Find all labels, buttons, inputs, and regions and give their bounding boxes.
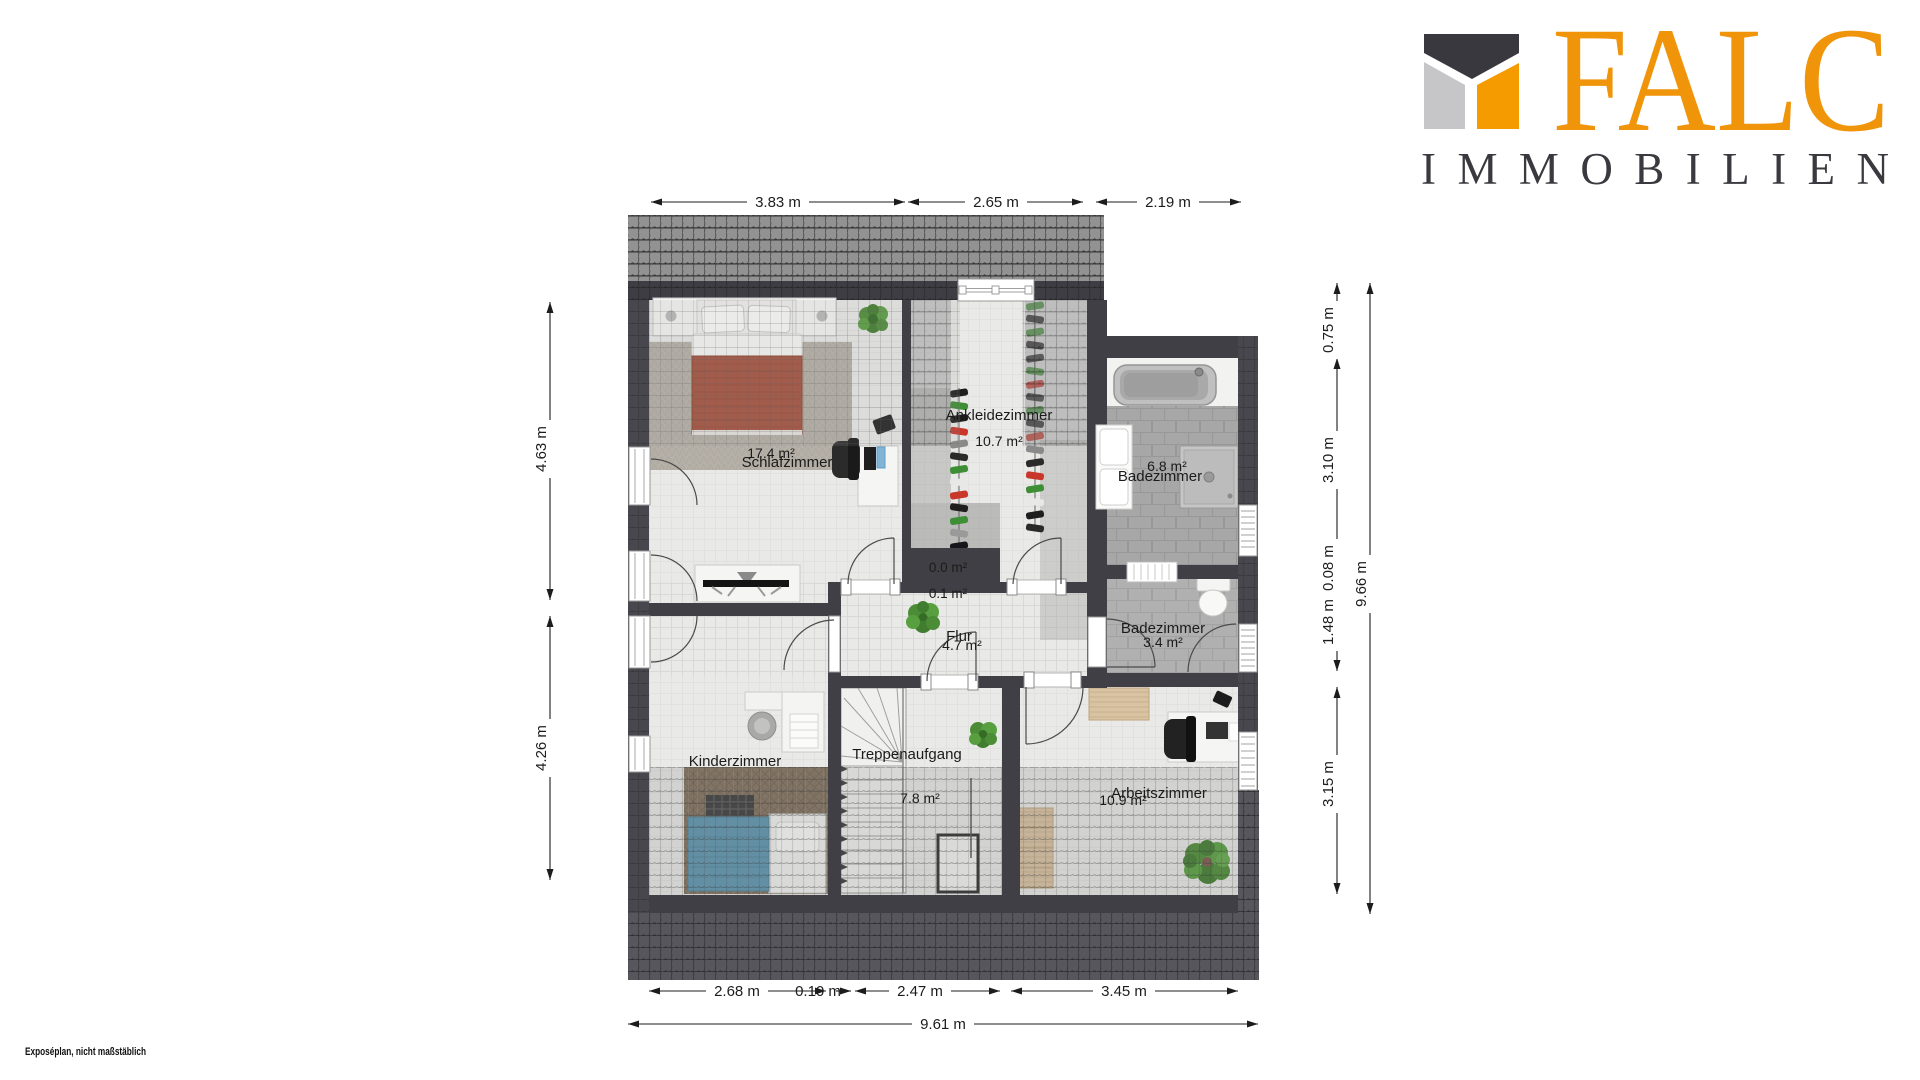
svg-text:2.47 m: 2.47 m: [897, 983, 943, 1000]
svg-text:4.26 m: 4.26 m: [533, 725, 550, 771]
svg-text:3.10 m: 3.10 m: [1320, 437, 1337, 483]
svg-text:0.1 m²: 0.1 m²: [929, 586, 968, 601]
svg-text:3.4 m²: 3.4 m²: [1143, 634, 1183, 650]
svg-text:2.19 m: 2.19 m: [1145, 194, 1191, 211]
svg-text:Treppenaufgang: Treppenaufgang: [852, 746, 962, 763]
svg-text:Exposéplan, nicht maßstäblich: Exposéplan, nicht maßstäblich: [25, 1046, 146, 1058]
svg-text:9.61 m: 9.61 m: [920, 1016, 966, 1033]
svg-text:0.10 m: 0.10 m: [795, 983, 841, 1000]
svg-text:0.0 m²: 0.0 m²: [929, 560, 968, 575]
svg-text:2.65 m: 2.65 m: [973, 194, 1019, 211]
svg-text:3.83 m: 3.83 m: [755, 194, 801, 211]
svg-text:4.63 m: 4.63 m: [533, 426, 550, 472]
svg-text:Kinderzimmer: Kinderzimmer: [689, 753, 782, 770]
svg-text:2.68 m: 2.68 m: [714, 983, 760, 1000]
svg-text:0.08 m: 0.08 m: [1320, 545, 1337, 591]
svg-text:Schlafzimmer: Schlafzimmer: [742, 454, 833, 471]
svg-text:7.8 m²: 7.8 m²: [900, 790, 940, 806]
svg-text:9.66 m: 9.66 m: [1353, 561, 1370, 607]
svg-text:4.7 m²: 4.7 m²: [942, 637, 982, 653]
svg-text:1.48 m: 1.48 m: [1320, 599, 1337, 645]
svg-text:3.15 m: 3.15 m: [1320, 761, 1337, 807]
svg-text:0.75 m: 0.75 m: [1320, 307, 1337, 353]
svg-text:10.7 m²: 10.7 m²: [975, 433, 1023, 449]
svg-text:3.45 m: 3.45 m: [1101, 983, 1147, 1000]
svg-text:10.9 m²: 10.9 m²: [1099, 792, 1147, 808]
svg-text:FALC: FALC: [1552, 0, 1890, 163]
svg-text:IMMOBILIEN: IMMOBILIEN: [1421, 144, 1889, 194]
svg-text:Badezimmer: Badezimmer: [1118, 468, 1202, 485]
svg-text:Ankleidezimmer: Ankleidezimmer: [946, 407, 1053, 424]
